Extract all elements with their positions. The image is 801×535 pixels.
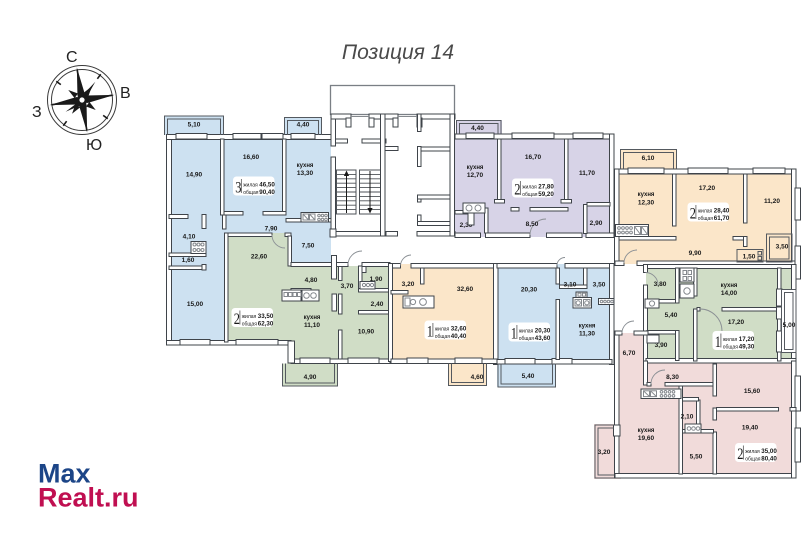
svg-text:кухня: кухня: [721, 283, 738, 289]
svg-text:1,60: 1,60: [182, 257, 195, 264]
svg-text:3,10: 3,10: [564, 282, 577, 289]
svg-text:кухня: кухня: [638, 192, 655, 198]
svg-text:14,00: 14,00: [721, 290, 738, 297]
svg-text:3,20: 3,20: [402, 281, 415, 288]
svg-text:35,00: 35,00: [761, 448, 777, 455]
svg-text:общая: общая: [435, 334, 451, 340]
svg-text:общая: общая: [723, 344, 739, 350]
svg-text:62,30: 62,30: [258, 321, 274, 328]
svg-text:3,50: 3,50: [776, 244, 789, 251]
svg-text:В: В: [120, 85, 131, 102]
svg-text:Позиция 14: Позиция 14: [342, 41, 454, 64]
svg-text:11,70: 11,70: [579, 170, 595, 177]
svg-text:28,40: 28,40: [714, 208, 730, 215]
svg-text:3,80: 3,80: [654, 281, 667, 288]
svg-text:4,10: 4,10: [183, 234, 196, 241]
svg-text:12,30: 12,30: [638, 200, 655, 207]
svg-text:46,50: 46,50: [259, 182, 275, 189]
svg-text:жилая: жилая: [519, 328, 534, 334]
svg-text:жилая: жилая: [243, 182, 258, 188]
svg-text:15,00: 15,00: [187, 301, 204, 308]
svg-text:жилая: жилая: [522, 184, 537, 190]
svg-text:общая: общая: [698, 216, 714, 222]
svg-text:10,90: 10,90: [358, 329, 375, 336]
svg-text:27,80: 27,80: [538, 184, 554, 191]
svg-text:15,60: 15,60: [744, 388, 761, 395]
svg-text:2: 2: [737, 446, 743, 463]
svg-text:4,80: 4,80: [305, 277, 318, 284]
svg-text:19,40: 19,40: [742, 425, 759, 432]
svg-text:6,10: 6,10: [642, 155, 655, 162]
svg-text:3,20: 3,20: [598, 449, 611, 456]
svg-text:11,20: 11,20: [764, 198, 780, 205]
svg-text:общая: общая: [243, 190, 259, 196]
svg-text:8,30: 8,30: [666, 374, 679, 381]
svg-text:жилая: жилая: [745, 449, 760, 455]
svg-text:2,40: 2,40: [371, 301, 384, 308]
svg-text:13,30: 13,30: [297, 170, 314, 177]
svg-text:общая: общая: [242, 321, 258, 327]
svg-text:20,30: 20,30: [535, 328, 551, 335]
svg-text:кухня: кухня: [467, 165, 484, 171]
svg-text:2: 2: [234, 311, 240, 328]
svg-text:6,70: 6,70: [623, 350, 636, 357]
svg-text:3: 3: [235, 179, 241, 196]
svg-text:22,60: 22,60: [251, 254, 268, 261]
svg-text:жилая: жилая: [242, 314, 257, 320]
svg-text:4,40: 4,40: [297, 122, 310, 129]
svg-text:5,00: 5,00: [783, 322, 796, 329]
svg-text:11,10: 11,10: [304, 322, 320, 329]
svg-text:32,60: 32,60: [457, 286, 474, 293]
svg-text:61,70: 61,70: [714, 215, 730, 222]
svg-text:общая: общая: [522, 192, 538, 198]
svg-text:16,60: 16,60: [243, 154, 260, 161]
svg-text:2: 2: [690, 205, 696, 222]
svg-text:кухня: кухня: [638, 428, 655, 434]
svg-text:7,50: 7,50: [302, 243, 315, 250]
svg-text:1: 1: [427, 323, 433, 340]
svg-text:1: 1: [715, 334, 721, 351]
svg-text:2: 2: [514, 181, 520, 198]
svg-text:жилая: жилая: [698, 208, 713, 214]
svg-text:14,90: 14,90: [186, 172, 203, 179]
svg-text:4,90: 4,90: [304, 374, 317, 381]
svg-text:4,40: 4,40: [471, 125, 484, 132]
svg-text:кухня: кухня: [304, 315, 321, 321]
svg-text:2,90: 2,90: [590, 220, 603, 227]
svg-text:Realt.ru: Realt.ru: [38, 483, 139, 513]
svg-text:43,60: 43,60: [535, 335, 551, 342]
svg-text:4,60: 4,60: [471, 374, 484, 381]
svg-text:16,70: 16,70: [525, 154, 542, 161]
svg-text:3,50: 3,50: [593, 282, 606, 289]
svg-text:19,60: 19,60: [638, 435, 655, 442]
svg-text:жилая: жилая: [435, 326, 450, 332]
svg-text:3,70: 3,70: [341, 283, 354, 290]
svg-text:С: С: [66, 49, 78, 66]
svg-text:90,40: 90,40: [259, 189, 275, 196]
svg-text:2,10: 2,10: [681, 414, 694, 421]
svg-text:7,90: 7,90: [265, 226, 278, 233]
svg-text:5,40: 5,40: [665, 312, 678, 319]
svg-text:17,20: 17,20: [739, 336, 755, 343]
svg-text:9,90: 9,90: [689, 250, 702, 257]
svg-text:20,30: 20,30: [521, 287, 538, 294]
svg-text:жилая: жилая: [723, 337, 738, 343]
svg-text:32,60: 32,60: [451, 326, 467, 333]
svg-text:кухня: кухня: [297, 163, 314, 169]
svg-text:80,40: 80,40: [761, 456, 777, 463]
svg-text:З: З: [32, 104, 42, 121]
svg-text:кухня: кухня: [579, 324, 596, 330]
svg-text:59,20: 59,20: [538, 191, 554, 198]
svg-text:общая: общая: [519, 336, 535, 342]
svg-text:5,40: 5,40: [522, 373, 535, 380]
svg-text:1: 1: [511, 325, 517, 342]
svg-text:5,10: 5,10: [188, 122, 201, 129]
svg-text:8,50: 8,50: [526, 221, 539, 228]
svg-text:33,50: 33,50: [258, 313, 274, 320]
svg-text:12,70: 12,70: [467, 172, 484, 179]
svg-text:11,30: 11,30: [579, 331, 595, 338]
svg-text:5,50: 5,50: [690, 454, 703, 461]
svg-text:общая: общая: [745, 456, 761, 462]
svg-text:49,30: 49,30: [739, 344, 755, 351]
svg-text:Ю: Ю: [86, 137, 102, 154]
svg-text:40,40: 40,40: [451, 333, 467, 340]
svg-text:1,50: 1,50: [743, 254, 756, 261]
svg-text:17,20: 17,20: [699, 185, 716, 192]
svg-text:17,20: 17,20: [728, 319, 745, 326]
